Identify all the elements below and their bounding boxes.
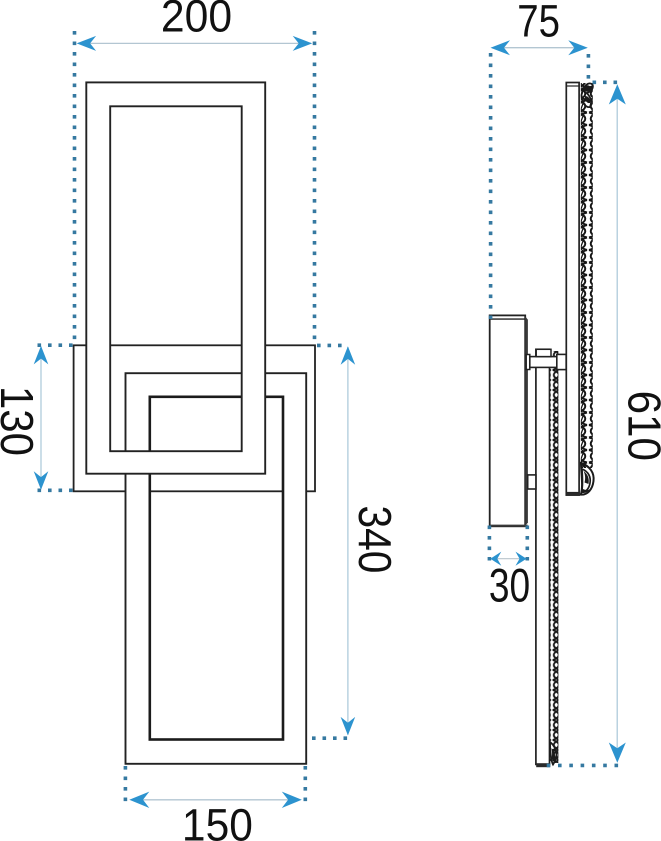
- svg-text:150: 150: [182, 800, 253, 841]
- svg-text:30: 30: [489, 559, 530, 611]
- svg-text:610: 610: [618, 391, 661, 461]
- svg-text:200: 200: [161, 0, 232, 42]
- svg-text:130: 130: [0, 386, 42, 456]
- svg-text:340: 340: [348, 505, 399, 573]
- svg-text:75: 75: [517, 0, 560, 46]
